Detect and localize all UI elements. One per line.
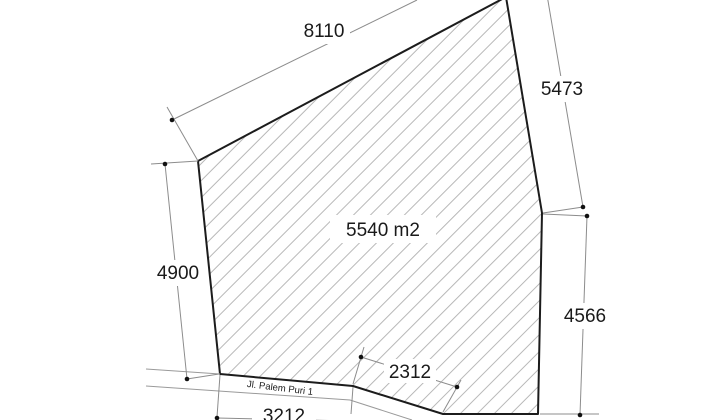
- dim-dot: [455, 385, 460, 390]
- dimension-line: [547, 0, 583, 207]
- leader-line: [543, 214, 587, 216]
- dimension-label-top: 8110: [304, 21, 345, 42]
- dim-dot: [170, 118, 175, 123]
- dimension-label-left: 4900: [157, 263, 199, 284]
- survey-sketch-canvas: 8110 5473 4566 4900 2312 3212 5540 m2 Jl…: [0, 0, 720, 420]
- leader-line: [543, 207, 583, 213]
- road-top-edge: [146, 369, 220, 374]
- dimension-right-upper-5473: [543, 0, 583, 213]
- extension-line: [151, 161, 198, 164]
- dimension-label-right-lower: 4566: [564, 306, 606, 327]
- dim-dot: [581, 205, 586, 210]
- plot-diagram: 8110 5473 4566 4900 2312 3212 5540 m2 Jl…: [0, 0, 720, 420]
- dim-dot: [163, 162, 168, 167]
- dim-dot: [215, 416, 220, 420]
- dimension-label-bottom-left-partial: 3212: [263, 406, 305, 420]
- parcel-area-label: 5540 m2: [346, 220, 420, 241]
- leader-line: [187, 374, 219, 379]
- dimension-label-bottom-slope: 2312: [389, 362, 431, 383]
- extension-line: [217, 375, 220, 417]
- dim-dot: [585, 214, 590, 219]
- dimension-label-right-upper: 5473: [541, 79, 583, 100]
- parcel-boundary-polygon: [198, 0, 542, 414]
- dim-dot: [359, 355, 364, 360]
- dim-dot: [185, 377, 190, 382]
- dim-dot: [578, 413, 583, 418]
